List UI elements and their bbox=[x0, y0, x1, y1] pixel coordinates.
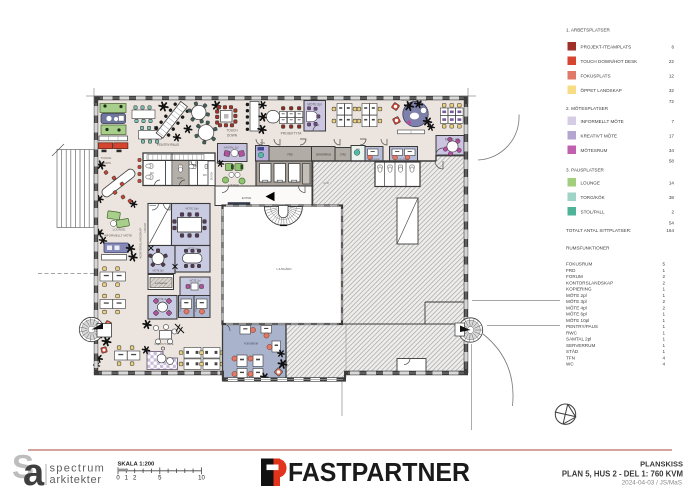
svg-text:TOTALT ANTAL SITTPLATSER:: TOTALT ANTAL SITTPLATSER: bbox=[566, 228, 631, 233]
svg-text:KOPIERING: KOPIERING bbox=[155, 283, 167, 285]
svg-text:KONTORSLANDSKAP: KONTORSLANDSKAP bbox=[566, 280, 613, 285]
svg-text:TOUCH DOWN/HOT DESK: TOUCH DOWN/HOT DESK bbox=[581, 59, 639, 64]
svg-text:TOUCH: TOUCH bbox=[101, 156, 112, 160]
svg-text:1: 1 bbox=[662, 324, 665, 329]
svg-text:1: 1 bbox=[662, 293, 665, 298]
svg-text:TFN: TFN bbox=[566, 355, 575, 360]
svg-text:ÖPPET LANDSKAP: ÖPPET LANDSKAP bbox=[581, 87, 622, 93]
svg-text:PLAN 5, HUS 2 - DEL 1: 760 KVM: PLAN 5, HUS 2 - DEL 1: 760 KVM bbox=[562, 470, 683, 479]
svg-text:FOKUSRUM: FOKUSRUM bbox=[244, 343, 258, 346]
svg-text:2. MÖTESPLATSER: 2. MÖTESPLATSER bbox=[566, 105, 609, 111]
svg-text:2: 2 bbox=[662, 280, 665, 285]
svg-text:KOPIERING: KOPIERING bbox=[566, 287, 592, 292]
svg-text:FOKUSRUM: FOKUSRUM bbox=[180, 301, 182, 312]
svg-text:164: 164 bbox=[666, 228, 674, 233]
svg-text:GYM: GYM bbox=[323, 182, 329, 185]
svg-text:54: 54 bbox=[669, 221, 675, 226]
svg-text:FOKUSRUM: FOKUSRUM bbox=[566, 262, 592, 267]
svg-text:TORG/KÖK: TORG/KÖK bbox=[581, 194, 606, 200]
svg-text:INFORMELLT MÖTE: INFORMELLT MÖTE bbox=[104, 234, 132, 238]
svg-text:FASTPARTNER: FASTPARTNER bbox=[288, 459, 470, 487]
svg-text:arkitekter: arkitekter bbox=[50, 474, 102, 486]
svg-text:STOL/PALL: STOL/PALL bbox=[581, 210, 606, 215]
svg-text:12: 12 bbox=[669, 74, 675, 79]
svg-text:1: 1 bbox=[662, 312, 665, 317]
svg-text:RUMSFUNKTIONER: RUMSFUNKTIONER bbox=[566, 246, 610, 251]
svg-text:SERVERRUM: SERVERRUM bbox=[316, 154, 331, 157]
svg-text:14: 14 bbox=[669, 181, 675, 186]
svg-text:1: 1 bbox=[662, 349, 665, 354]
svg-text:DUSCH: DUSCH bbox=[212, 172, 214, 181]
svg-text:WC: WC bbox=[566, 362, 574, 367]
svg-text:DOWN: DOWN bbox=[227, 134, 238, 138]
svg-text:MÖTE 4pl: MÖTE 4pl bbox=[445, 138, 460, 142]
svg-text:WC: WC bbox=[203, 174, 207, 177]
svg-text:KONTORSLANDSKAP: KONTORSLANDSKAP bbox=[139, 228, 143, 259]
svg-text:2: 2 bbox=[662, 299, 665, 304]
svg-text:FRD: FRD bbox=[566, 268, 576, 273]
svg-text:1: 1 bbox=[662, 268, 665, 273]
svg-text:MÖTE 4pl: MÖTE 4pl bbox=[566, 304, 587, 310]
svg-text:LOUNGE: LOUNGE bbox=[581, 181, 600, 186]
svg-text:2: 2 bbox=[662, 305, 665, 310]
svg-text:MÖTE 4pl: MÖTE 4pl bbox=[157, 298, 168, 301]
svg-text:MÖTE 6pl: MÖTE 6pl bbox=[566, 311, 587, 317]
svg-text:INFORMELLT MÖTE: INFORMELLT MÖTE bbox=[581, 118, 624, 124]
svg-text:FRD: FRD bbox=[287, 153, 292, 157]
svg-text:32: 32 bbox=[669, 88, 675, 93]
svg-text:TFN: TFN bbox=[356, 149, 361, 151]
svg-text:SERVERRUM: SERVERRUM bbox=[566, 343, 595, 348]
svg-text:MÖTE 6pl: MÖTE 6pl bbox=[307, 103, 322, 107]
svg-text:MÖTESRUM: MÖTESRUM bbox=[581, 147, 608, 153]
svg-text:5: 5 bbox=[662, 262, 665, 267]
svg-text:PENTRY/PAUS: PENTRY/PAUS bbox=[566, 324, 598, 329]
svg-text:1: 1 bbox=[662, 287, 665, 292]
svg-text:FORUM: FORUM bbox=[566, 274, 583, 279]
svg-text:MÖTE 3pl: MÖTE 3pl bbox=[566, 298, 587, 304]
svg-text:MÖTE 6pl: MÖTE 6pl bbox=[188, 248, 199, 251]
svg-text:22: 22 bbox=[669, 59, 675, 64]
svg-text:PROJEKT-/TEAMPLATS: PROJEKT-/TEAMPLATS bbox=[581, 45, 632, 50]
svg-text:RWC: RWC bbox=[566, 330, 578, 335]
svg-text:34: 34 bbox=[669, 148, 675, 153]
svg-text:1: 1 bbox=[662, 343, 665, 348]
svg-text:2: 2 bbox=[671, 210, 674, 215]
svg-text:7: 7 bbox=[671, 119, 674, 124]
svg-text:1. ARBETSPLATSER: 1. ARBETSPLATSER bbox=[566, 28, 611, 33]
svg-text:MÖTE 2pl: MÖTE 2pl bbox=[566, 292, 587, 298]
svg-text:2024-04-03 / JS/MaS: 2024-04-03 / JS/MaS bbox=[622, 480, 682, 487]
svg-text:10: 10 bbox=[198, 476, 205, 482]
svg-text:KREATIVT MÖTE: KREATIVT MÖTE bbox=[154, 343, 173, 346]
svg-text:WC: WC bbox=[150, 172, 154, 175]
svg-text:72: 72 bbox=[669, 99, 675, 104]
svg-text:FORUM: FORUM bbox=[144, 223, 147, 232]
svg-text:MÖTE 2pl: MÖTE 2pl bbox=[190, 280, 201, 283]
svg-text:SAMTAL 2pl: SAMTAL 2pl bbox=[566, 337, 591, 342]
svg-text:FOKUSPLATS: FOKUSPLATS bbox=[581, 74, 611, 79]
svg-text:3. PAUSPLATSER: 3. PAUSPLATSER bbox=[566, 168, 605, 173]
svg-text:58: 58 bbox=[669, 159, 675, 164]
svg-text:1: 1 bbox=[662, 337, 665, 342]
svg-text:PLANSKISS: PLANSKISS bbox=[640, 460, 683, 469]
svg-text:1: 1 bbox=[662, 330, 665, 335]
svg-text:LJUSGÅRD: LJUSGÅRD bbox=[277, 266, 292, 271]
svg-text:MÖTE 10pl: MÖTE 10pl bbox=[566, 317, 589, 323]
svg-text:6: 6 bbox=[671, 45, 674, 50]
svg-text:PROJEKTYTA: PROJEKTYTA bbox=[281, 132, 303, 136]
svg-text:SKALA 1:200: SKALA 1:200 bbox=[118, 462, 155, 468]
svg-text:ENTRE: ENTRE bbox=[242, 196, 252, 200]
svg-text:38: 38 bbox=[669, 195, 675, 200]
svg-text:TOUCH: TOUCH bbox=[226, 129, 238, 133]
svg-text:STÄD: STÄD bbox=[566, 348, 579, 354]
svg-text:DOWN: DOWN bbox=[101, 161, 111, 165]
svg-text:MÖTE 5pl: MÖTE 5pl bbox=[153, 270, 164, 273]
svg-text:FOKUSRUM: FOKUSRUM bbox=[195, 301, 197, 312]
svg-text:1: 1 bbox=[662, 318, 665, 323]
svg-text:PENTRY/PAUS: PENTRY/PAUS bbox=[157, 143, 179, 147]
svg-text:2: 2 bbox=[662, 274, 665, 279]
svg-text:4: 4 bbox=[662, 362, 665, 367]
svg-text:SAMTAL 2pl: SAMTAL 2pl bbox=[224, 146, 239, 150]
svg-text:4: 4 bbox=[662, 355, 665, 360]
svg-text:MÖTE 10pl: MÖTE 10pl bbox=[185, 207, 199, 211]
svg-text:a: a bbox=[23, 452, 45, 494]
svg-text:RWC: RWC bbox=[178, 177, 184, 180]
svg-text:KREATIVT MÖTE: KREATIVT MÖTE bbox=[581, 133, 618, 139]
svg-text:LOUNGE: LOUNGE bbox=[113, 228, 126, 232]
svg-text:17: 17 bbox=[669, 134, 675, 139]
svg-text:spectrum: spectrum bbox=[50, 463, 106, 475]
